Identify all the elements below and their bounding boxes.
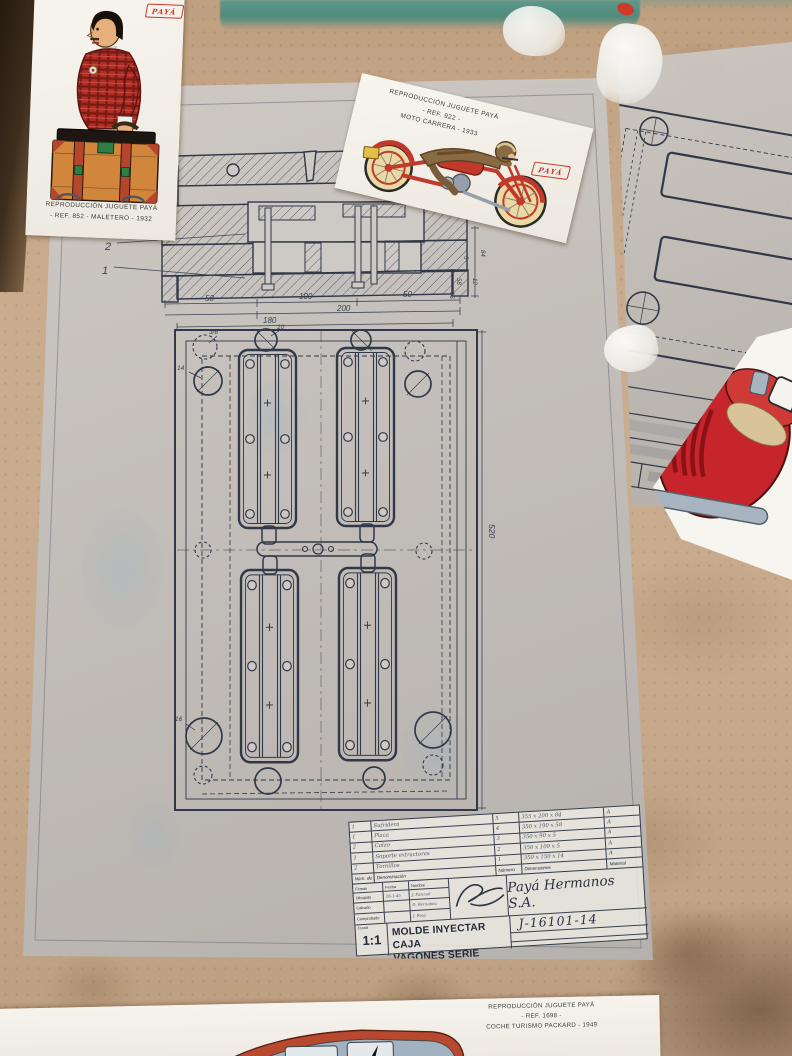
scale-value: 1:1 <box>356 932 388 949</box>
photo-scene: 1:1 <box>0 0 792 1056</box>
green-mat-edge <box>220 0 640 30</box>
porter-toy-illustration <box>29 3 182 204</box>
drawing-title: MOLDE INYECTAR CAJA VAGONES SERIE 16101 <box>387 915 511 955</box>
runner-channel <box>257 524 377 574</box>
hole-label-3-8: 3/8" <box>209 329 221 336</box>
dim-12: 12 <box>471 278 477 285</box>
card-caption: REPRODUCCIÓN JUGUETE PAYÁ - REF. 1698 - … <box>443 999 640 1033</box>
card-caption: REPRODUCCIÓN JUGUETE PAYÁ - REF. 852 - M… <box>30 199 173 226</box>
packard-car-illustration <box>197 1023 468 1056</box>
handwritten-signature <box>449 875 509 918</box>
dim-50-right: 50 <box>403 290 412 299</box>
tapped-holes <box>193 335 443 784</box>
plan-view <box>175 329 486 810</box>
title-block: 1 Sufridera 5 355 x 200 x 84 A 1 Placa 4… <box>348 804 647 956</box>
dim-180: 180 <box>263 316 277 325</box>
dim-100: 100 <box>299 292 313 301</box>
signature-scribble <box>449 875 509 918</box>
dim-200: 200 <box>336 304 351 313</box>
callout-1: 1 <box>102 265 108 277</box>
signature-grid: Firmas Fecha Nombre Dibujado 26-1-45 J. … <box>353 879 451 925</box>
scale-box: Escala 1:1 <box>355 923 389 958</box>
tissue-piece-top <box>503 6 565 56</box>
number-plate <box>363 147 379 159</box>
callout-2: 2 <box>104 241 111 253</box>
plate-holes <box>186 329 451 794</box>
dim-50-left: 50 <box>205 294 214 303</box>
dim-58: 58 <box>455 278 461 285</box>
hole-label-16: 16 <box>175 716 183 723</box>
dim-16: 16 <box>448 292 454 299</box>
card-maletero: PAYÁ <box>25 0 184 241</box>
hole-label-14: 14 <box>177 365 185 372</box>
dim-520: 520 <box>487 524 497 538</box>
scale-label: Escala <box>357 926 368 931</box>
green-mat-edge-right <box>630 0 792 10</box>
hole-label-10: 10 <box>277 324 285 331</box>
dim-84: 84 <box>479 250 485 257</box>
